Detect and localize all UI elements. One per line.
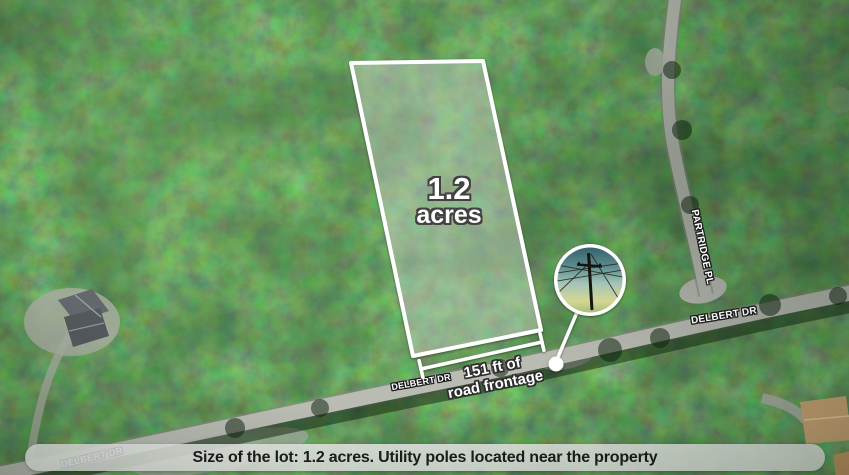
location-dot bbox=[549, 357, 564, 372]
caption-bar: Size of the lot: 1.2 acres. Utility pole… bbox=[25, 444, 825, 471]
lot-size-label: 1.2 acres bbox=[416, 175, 481, 227]
annotation-overlay bbox=[0, 0, 849, 475]
utility-pole-inset bbox=[554, 244, 626, 316]
inset-leader-line bbox=[558, 314, 577, 358]
lot-size-value: 1.2 bbox=[416, 175, 481, 204]
lot-size-unit: acres bbox=[416, 204, 481, 227]
aerial-lot-map: DELBERT DR DELBERT DR DELBERT DR PARTRID… bbox=[0, 0, 849, 475]
caption-text: Size of the lot: 1.2 acres. Utility pole… bbox=[193, 449, 658, 467]
